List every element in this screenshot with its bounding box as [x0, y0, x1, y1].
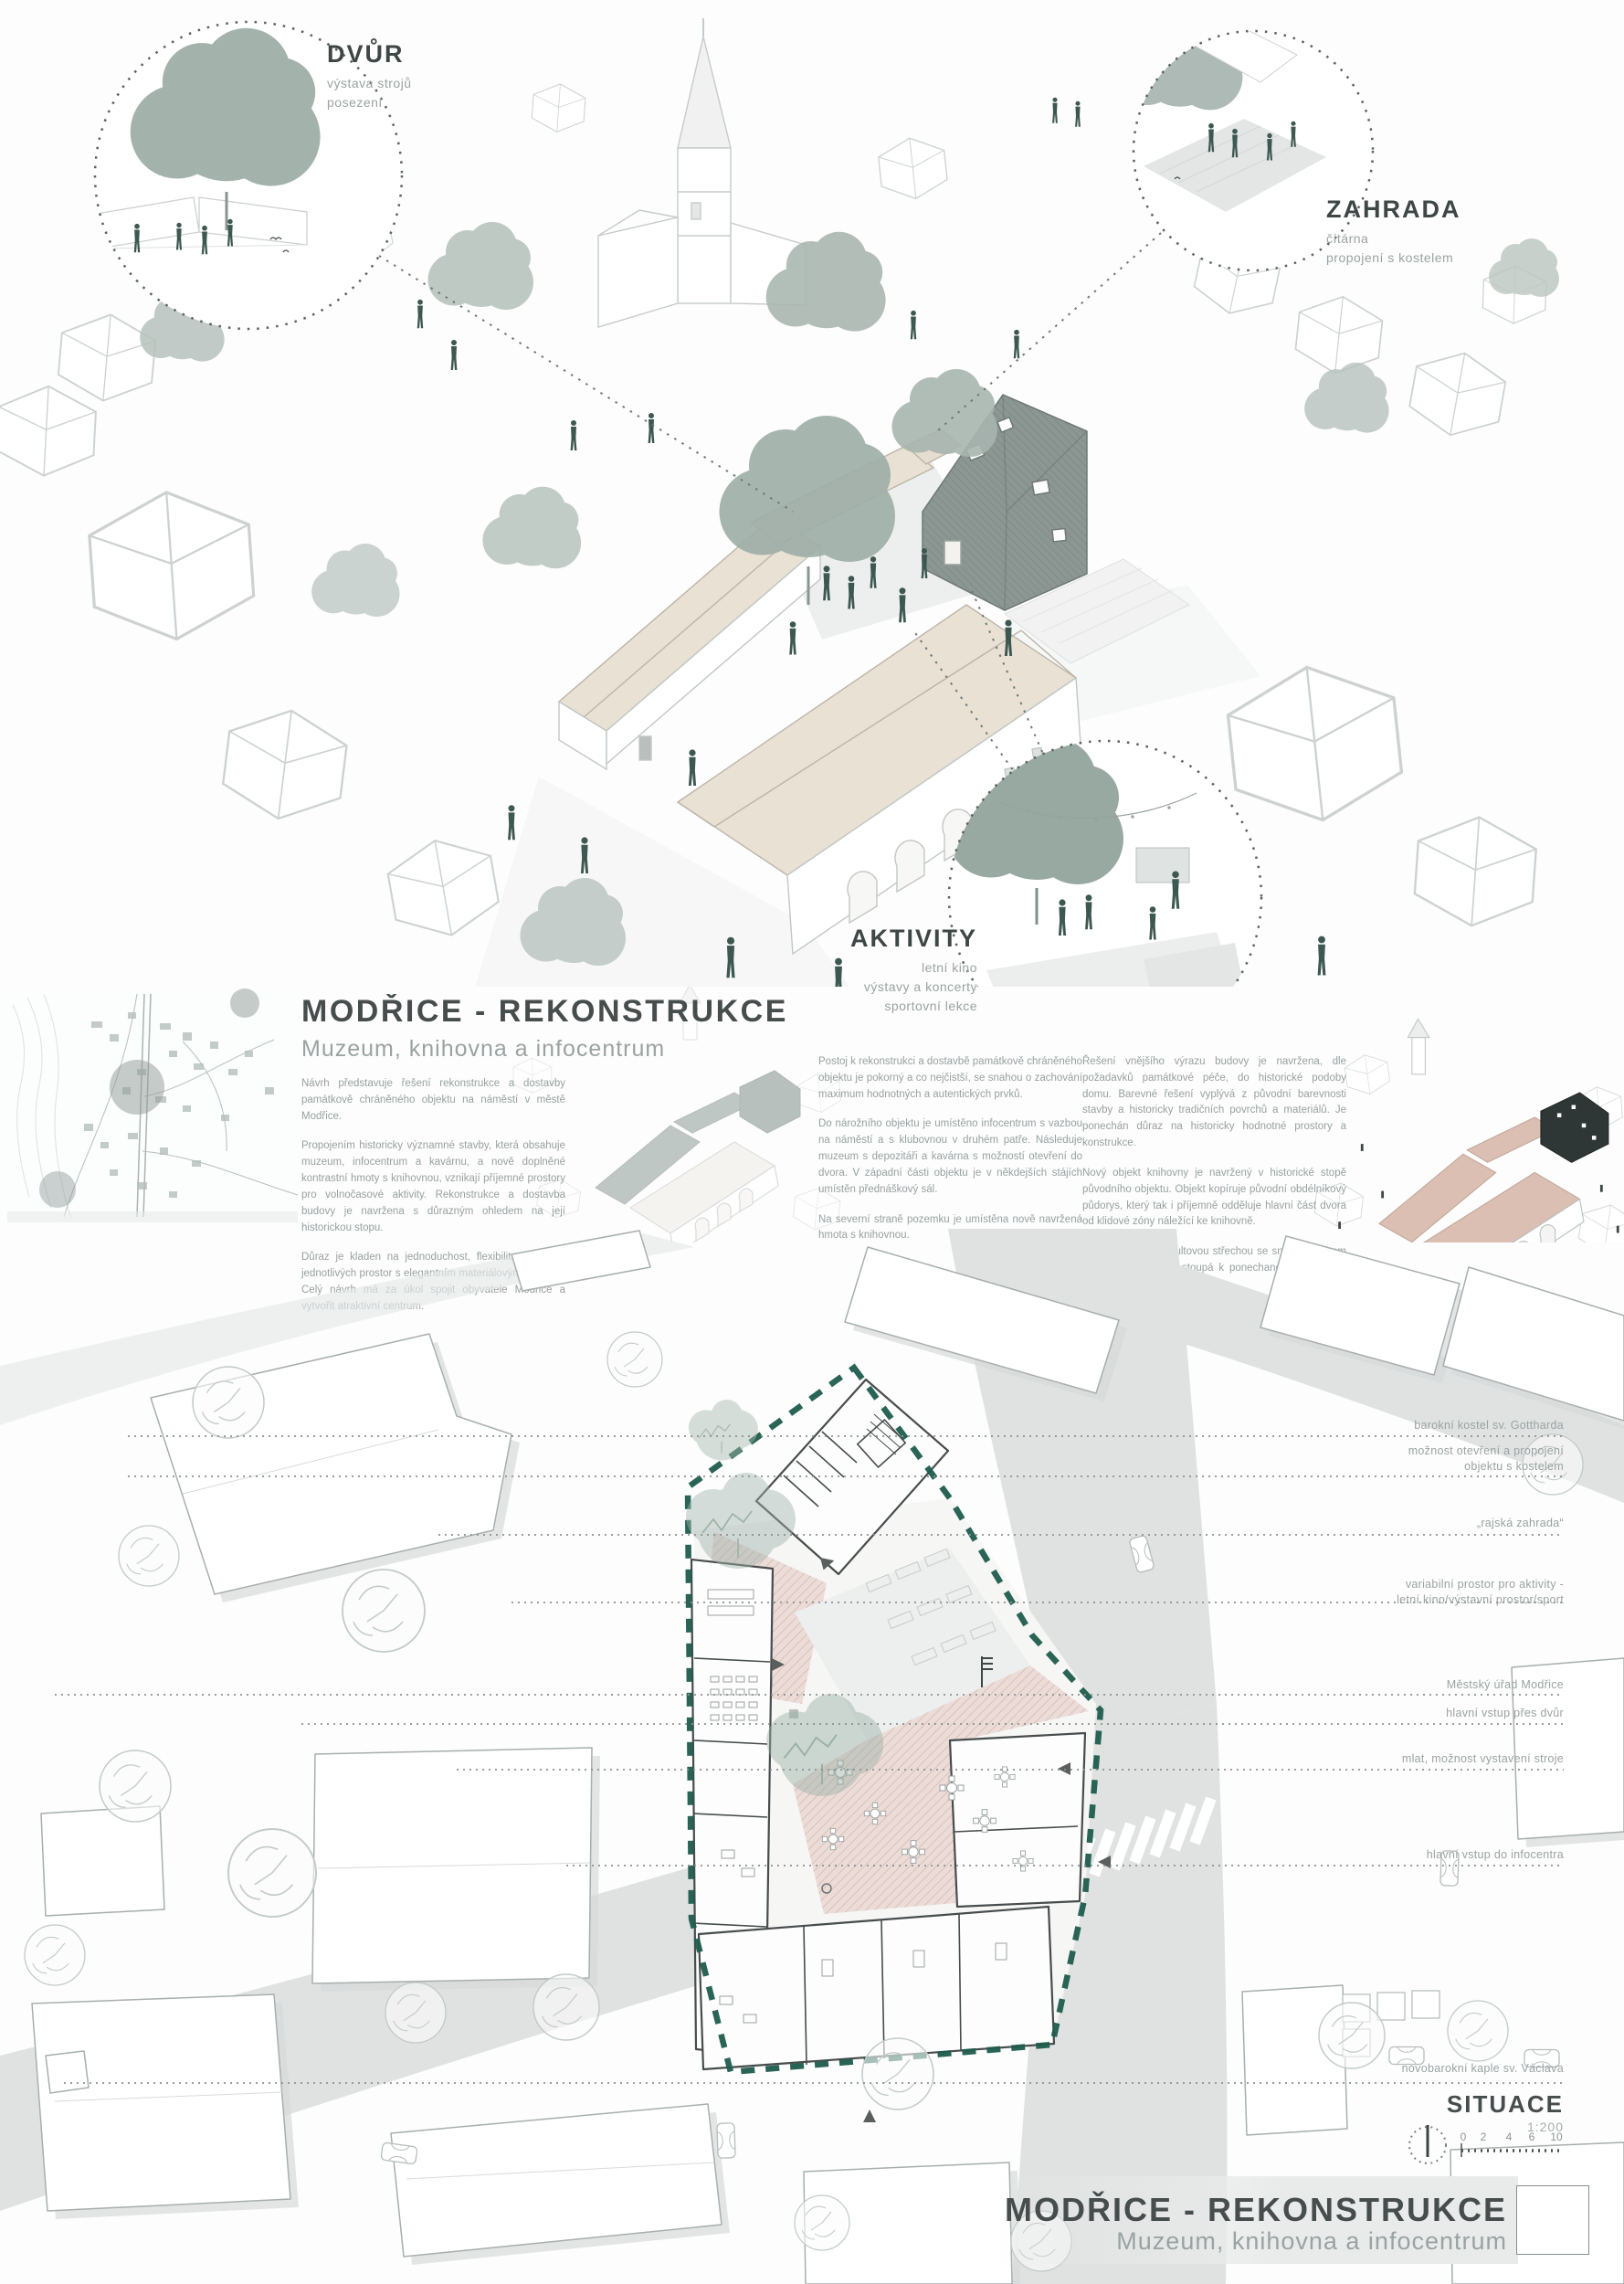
- callout-aktivity-title: AKTIVITY: [850, 926, 977, 951]
- city-map-strip: [7, 989, 298, 1222]
- plan-annotation-urad: Městský úřad Modřice: [1447, 1677, 1564, 1693]
- callout-zahrada: ZAHRADA čítárna propojení s kostelem: [1326, 197, 1461, 268]
- scalebar-tick: 2: [1481, 2131, 1487, 2143]
- plan-annotation-vstup-dvur: hlavní vstup přes dvůr: [1446, 1706, 1564, 1721]
- plan-annotation-propojeni: možnost otevření a propojení objektu s k…: [1408, 1443, 1564, 1475]
- map-highlight-centre: [110, 1060, 164, 1115]
- scalebar-tick: 0: [1461, 2131, 1467, 2143]
- logo-placeholder-box: [1516, 2185, 1589, 2255]
- mini-axon-colour: [1313, 1019, 1624, 1242]
- presentation-board: DVŮR výstava strojů posezení ZAHRADA čít…: [0, 0, 1624, 2284]
- plan-annotation-zahrada: „rajská zahrada“: [1477, 1516, 1564, 1531]
- text-column-middle: Postoj k rekonstrukci a dostavbě památko…: [818, 1054, 1082, 1258]
- paragraph: Propojením historicky významné stavby, k…: [301, 1138, 565, 1236]
- plan-annotation-mlat: mlat, možnost vystavení stroje: [1402, 1751, 1564, 1767]
- kaple-footprint: [46, 2051, 89, 2093]
- callout-zahrada-title: ZAHRADA: [1326, 197, 1461, 222]
- plan-annotation-variabilni: variabilní prostor pro aktivity - letní …: [1397, 1577, 1564, 1608]
- paragraph: Nový objekt knihovny je navržený v histo…: [1082, 1166, 1346, 1231]
- paragraph: Návrh představuje řešení rekonstrukce a …: [301, 1076, 565, 1125]
- header-block: MODŘICE - REKONSTRUKCE Muzeum, knihovna …: [301, 994, 788, 1063]
- callout-dvur: DVŮR výstava strojů posezení: [327, 42, 412, 112]
- courtyard-tree: [720, 416, 896, 562]
- plan-annotation-infocentrum: hlavní vstup do infocentra: [1427, 1847, 1564, 1863]
- paragraph: Řešení vnějšího výrazu budovy je navržen…: [1082, 1054, 1346, 1152]
- middle-band-graphics: [0, 987, 1624, 1242]
- callout-dvur-title: DVŮR: [327, 42, 412, 67]
- plan-annotation-kostel: barokní kostel sv. Gottharda: [1414, 1418, 1564, 1433]
- callout-dvur-sub: výstava strojů posezení: [327, 74, 412, 112]
- infocentrum-plan: [950, 1733, 1085, 1907]
- page-title: MODŘICE - REKONSTRUKCE: [301, 994, 788, 1030]
- callout-zahrada-sub: čítárna propojení s kostelem: [1326, 229, 1461, 268]
- scalebar-tick: 4: [1506, 2131, 1513, 2143]
- north-arrow-icon: [1409, 2125, 1446, 2163]
- drawing-title: SITUACE: [1447, 2090, 1564, 2119]
- site-plan: 0 2 4 6 10: [0, 1229, 1624, 2284]
- kostel-footprint: [151, 1334, 511, 1594]
- paragraph: Do nárožního objektu je umístěno infocen…: [818, 1116, 1082, 1198]
- drawing-scale: 1:200: [1527, 2120, 1564, 2134]
- paragraph: Postoj k rekonstrukci a dostavbě památko…: [818, 1054, 1082, 1103]
- footer-subtitle: Muzeum, knihovna a infocentrum: [1116, 2227, 1507, 2256]
- axonometric-view: [0, 0, 1624, 987]
- page-subtitle: Muzeum, knihovna a infocentrum: [301, 1036, 788, 1063]
- footer-title: MODŘICE - REKONSTRUKCE: [1005, 2191, 1507, 2229]
- plan-annotation-kaple: novobarokní kaple sv. Václava: [1402, 2061, 1564, 2077]
